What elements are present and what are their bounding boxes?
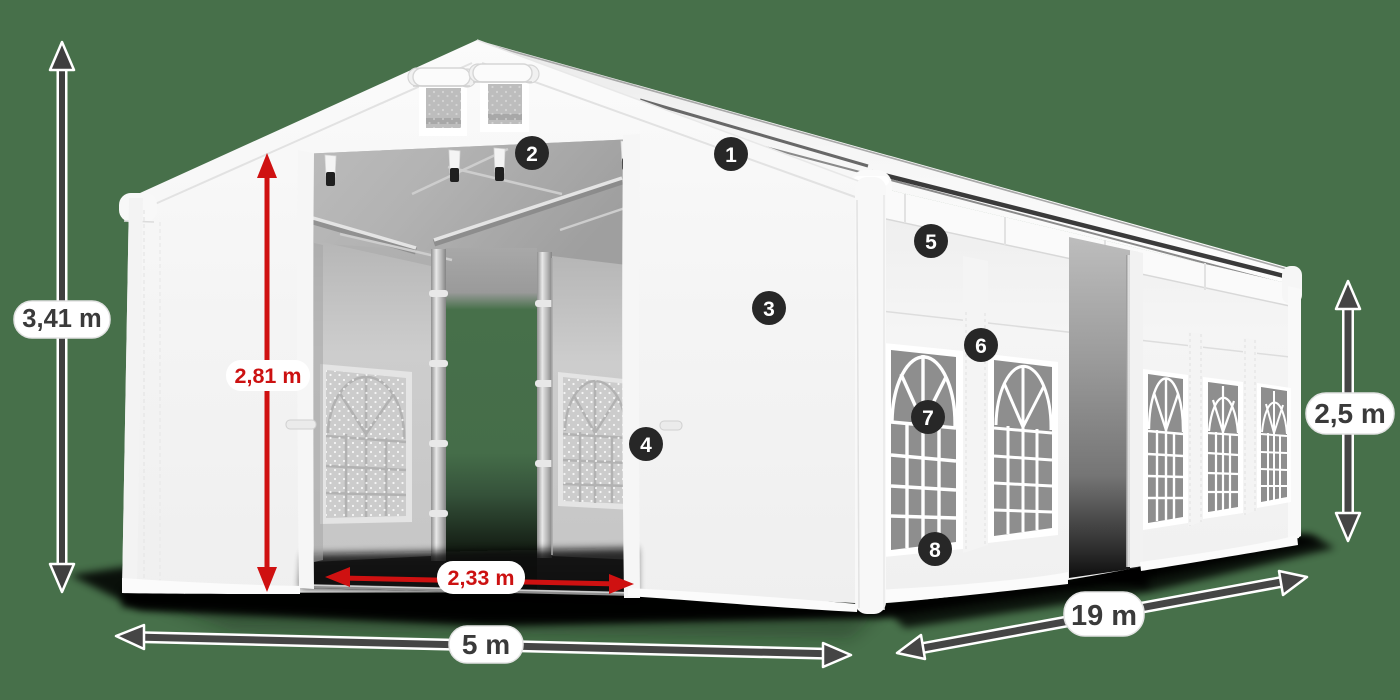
svg-text:2,33 m: 2,33 m	[448, 566, 515, 590]
svg-text:5 m: 5 m	[462, 629, 510, 660]
svg-text:5: 5	[925, 231, 937, 254]
svg-text:19 m: 19 m	[1071, 600, 1137, 632]
svg-text:2: 2	[526, 143, 538, 166]
svg-text:3,41 m: 3,41 m	[22, 305, 101, 333]
svg-text:1: 1	[725, 144, 737, 167]
svg-text:4: 4	[640, 434, 652, 457]
svg-text:6: 6	[975, 335, 987, 358]
svg-text:2,5 m: 2,5 m	[1314, 398, 1386, 429]
svg-text:8: 8	[929, 539, 941, 562]
svg-text:3: 3	[763, 298, 775, 321]
svg-text:7: 7	[922, 407, 934, 430]
svg-text:2,81 m: 2,81 m	[235, 364, 302, 388]
